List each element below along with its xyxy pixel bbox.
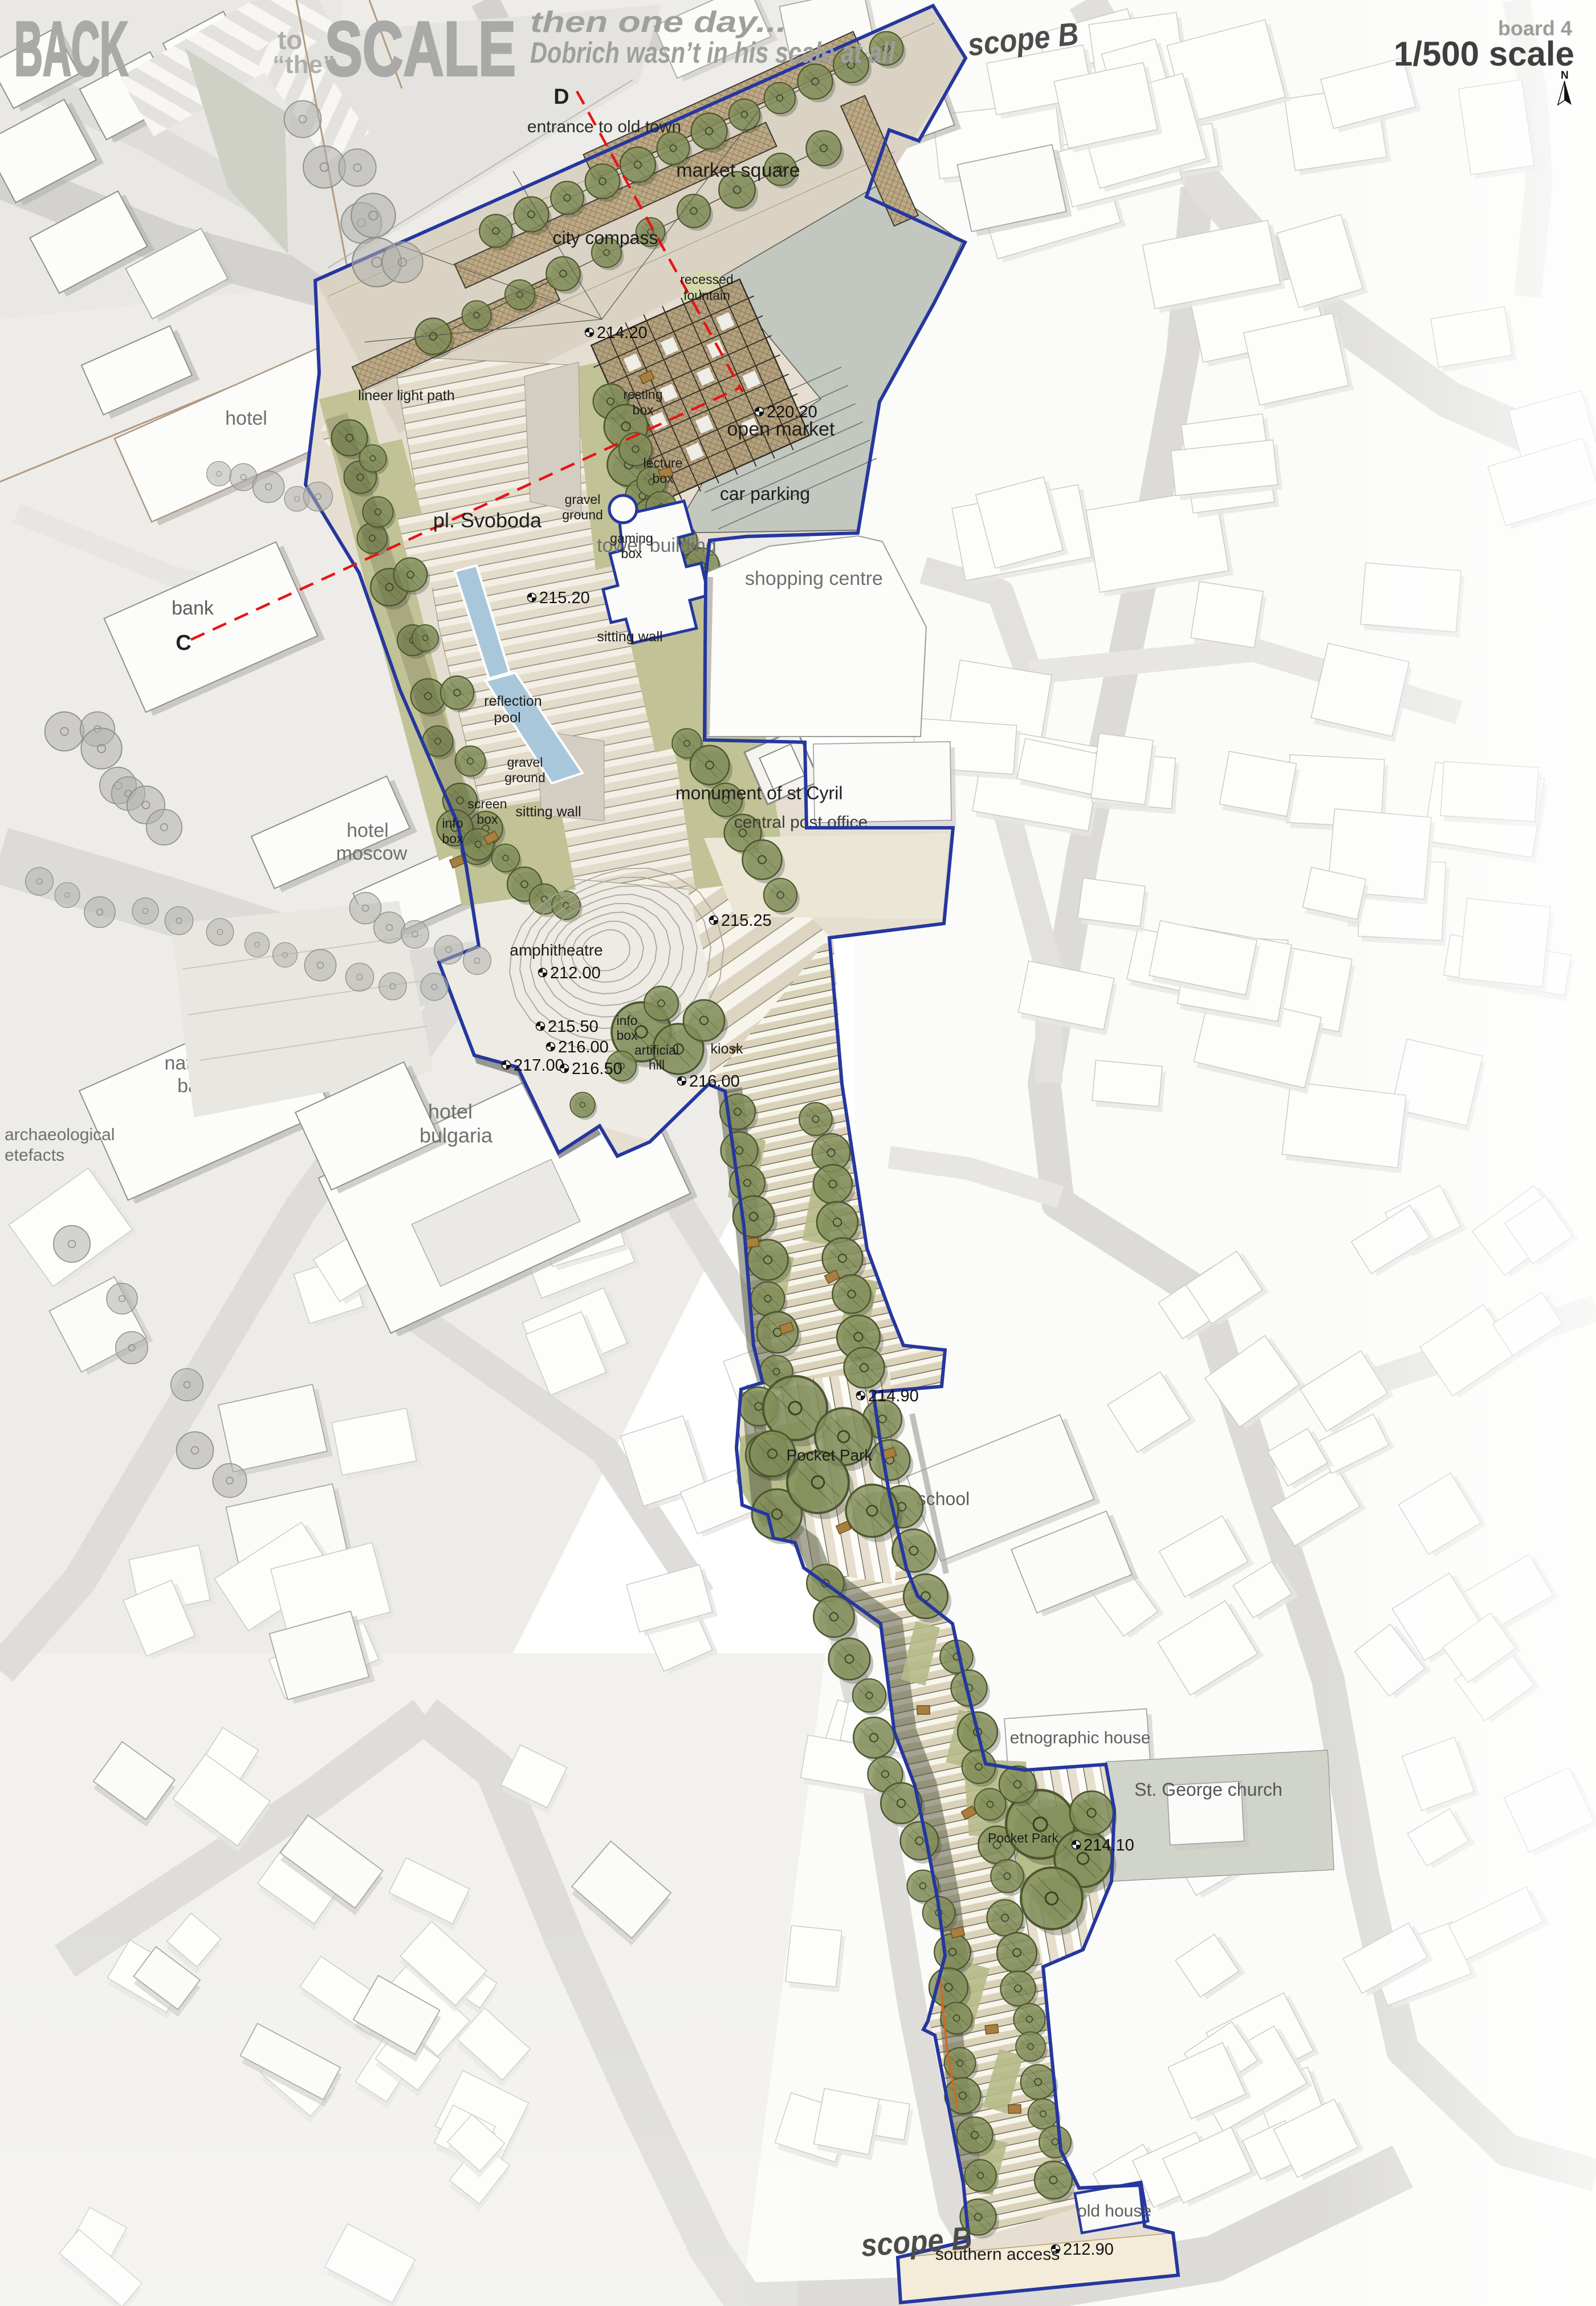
svg-text:hotel: hotel <box>347 820 389 841</box>
svg-text:216.00: 216.00 <box>689 1072 740 1091</box>
svg-text:artificial: artificial <box>634 1043 679 1058</box>
svg-text:N: N <box>1561 70 1569 82</box>
svg-text:box: box <box>652 471 674 486</box>
svg-text:217.00: 217.00 <box>514 1056 564 1075</box>
svg-text:info: info <box>616 1013 637 1028</box>
svg-text:gravel: gravel <box>507 755 543 770</box>
svg-text:215.25: 215.25 <box>721 912 772 930</box>
svg-text:Pocket Park: Pocket Park <box>787 1446 873 1464</box>
svg-text:bulgaria: bulgaria <box>420 1124 493 1147</box>
svg-text:sitting wall: sitting wall <box>515 804 581 820</box>
svg-text:C: C <box>176 631 191 655</box>
svg-text:then one day...: then one day... <box>530 6 787 39</box>
svg-text:box: box <box>621 546 642 561</box>
svg-text:box: box <box>616 1028 638 1043</box>
svg-text:car parking: car parking <box>720 483 810 504</box>
svg-text:reflection: reflection <box>484 693 541 709</box>
svg-text:214.10: 214.10 <box>1084 1836 1134 1854</box>
svg-text:etnographic house: etnographic house <box>1010 1729 1151 1747</box>
svg-text:BACK: BACK <box>14 6 128 92</box>
svg-text:amphitheatre: amphitheatre <box>510 941 602 959</box>
svg-text:ground: ground <box>504 770 545 785</box>
svg-text:Dobrich wasn’t in his scale at: Dobrich wasn’t in his scale at all <box>530 36 895 70</box>
svg-text:SCALE: SCALE <box>325 6 516 92</box>
svg-text:D: D <box>553 85 569 109</box>
svg-text:pool: pool <box>494 710 520 726</box>
svg-text:market square: market square <box>676 160 800 181</box>
svg-text:fountain: fountain <box>683 288 730 303</box>
svg-text:old house: old house <box>1077 2202 1151 2220</box>
svg-text:gaming: gaming <box>610 531 653 546</box>
svg-text:archaeological: archaeological <box>5 1125 115 1144</box>
svg-text:box: box <box>632 402 654 417</box>
svg-text:216.00: 216.00 <box>558 1038 609 1056</box>
svg-text:215.20: 215.20 <box>539 589 590 607</box>
svg-text:shopping centre: shopping centre <box>745 568 883 589</box>
svg-text:hotel: hotel <box>225 408 267 429</box>
svg-text:hill: hill <box>649 1058 665 1072</box>
svg-text:216.50: 216.50 <box>572 1060 622 1078</box>
svg-text:lineer light path: lineer light path <box>358 388 455 404</box>
svg-text:resting: resting <box>623 387 662 402</box>
svg-text:kiosk: kiosk <box>711 1041 743 1057</box>
svg-text:St. George church: St. George church <box>1134 1779 1282 1800</box>
svg-text:Pocket Park: Pocket Park <box>988 1831 1058 1845</box>
svg-text:214.90: 214.90 <box>868 1387 919 1405</box>
svg-text:212.90: 212.90 <box>1063 2240 1114 2259</box>
svg-text:ground: ground <box>562 507 603 522</box>
svg-text:pl. Svoboda: pl. Svoboda <box>433 509 542 532</box>
svg-text:open market: open market <box>727 418 836 440</box>
svg-text:hotel: hotel <box>428 1100 473 1123</box>
svg-text:monument of st Cyril: monument of st Cyril <box>675 783 842 803</box>
svg-text:etefacts: etefacts <box>5 1146 64 1165</box>
svg-text:box: box <box>477 812 498 827</box>
svg-text:215.50: 215.50 <box>548 1018 598 1036</box>
svg-text:screen: screen <box>467 796 507 811</box>
svg-text:info: info <box>442 816 463 831</box>
svg-text:212.00: 212.00 <box>550 964 601 982</box>
svg-text:lecture: lecture <box>643 455 682 470</box>
svg-text:city compass: city compass <box>553 227 658 248</box>
svg-text:moscow: moscow <box>336 843 408 864</box>
svg-text:entrance to old town: entrance to old town <box>527 117 681 136</box>
svg-text:214.20: 214.20 <box>597 324 648 342</box>
svg-text:1/500 scale: 1/500 scale <box>1394 35 1574 73</box>
svg-text:recessed: recessed <box>680 272 733 287</box>
svg-text:gravel: gravel <box>565 492 601 507</box>
svg-text:bank: bank <box>172 597 214 619</box>
svg-text:box: box <box>442 831 463 846</box>
svg-text:sitting wall: sitting wall <box>597 629 662 645</box>
